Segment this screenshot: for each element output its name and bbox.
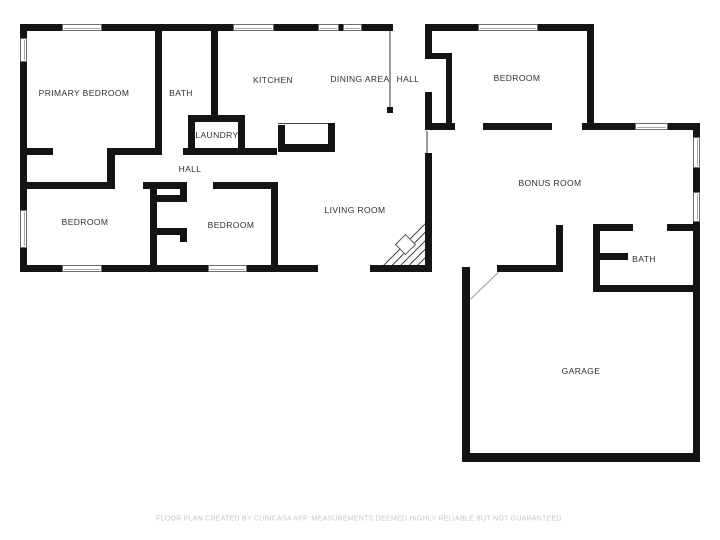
wall-bedroom-right-side xyxy=(587,24,594,130)
window-marker xyxy=(635,123,668,130)
wall-hall-top xyxy=(20,148,53,155)
wall-closet xyxy=(180,228,187,242)
wall-garage-left xyxy=(462,267,470,462)
wall-hall-top xyxy=(183,148,277,155)
wall-closet-shelf xyxy=(157,228,180,235)
room-label-hall-top: HALL xyxy=(397,74,420,84)
wall-bonus-top xyxy=(582,123,635,130)
room-label-bath-main: BATH xyxy=(169,88,193,98)
room-label-laundry: LAUNDRY xyxy=(195,130,238,140)
window-marker xyxy=(478,24,538,31)
wall-bath-stub xyxy=(600,253,628,260)
room-label-garage: GARAGE xyxy=(562,366,601,376)
footer-disclaimer: FLOOR PLAN CREATED BY CUBICASA APP. MEAS… xyxy=(156,516,564,523)
window-marker xyxy=(318,24,339,31)
room-label-bedroom-left: BEDROOM xyxy=(62,217,109,227)
wall-bath-top xyxy=(667,224,700,231)
window-marker xyxy=(20,210,27,248)
divider-line-dining-hall xyxy=(389,31,391,109)
wall-bedroom-mid-right xyxy=(271,182,278,272)
wall-kitchen-left xyxy=(211,31,218,117)
window-marker xyxy=(693,137,700,168)
room-label-dining-area: DINING AREA xyxy=(330,74,389,84)
wall-bedrooms-top xyxy=(213,182,278,189)
wall-laundry-left xyxy=(188,122,195,155)
window-marker xyxy=(62,265,102,272)
wall-bedrooms-top xyxy=(20,182,115,189)
wall-living-bonus-divider xyxy=(425,153,432,272)
room-label-bonus-room: BONUS ROOM xyxy=(518,178,581,188)
wall-bonus-top xyxy=(425,123,455,130)
wall-segment xyxy=(370,265,432,272)
room-label-kitchen: KITCHEN xyxy=(253,75,293,85)
wall-bonus-bottom xyxy=(497,265,563,272)
wall-closet-shelf xyxy=(157,195,180,202)
window-marker xyxy=(343,24,362,31)
wall-closet xyxy=(150,182,157,272)
wall-garage-bottom xyxy=(462,453,700,462)
room-label-primary-bedroom: PRIMARY BEDROOM xyxy=(39,88,130,98)
wall-closet xyxy=(180,182,187,202)
room-label-bath-right: BATH xyxy=(632,254,656,264)
wall-laundry-right xyxy=(238,115,245,155)
wall-closet xyxy=(446,53,452,125)
divider-line-hall-living xyxy=(426,131,428,155)
wall-segment xyxy=(20,24,27,38)
room-label-bedroom-right: BEDROOM xyxy=(494,73,541,83)
wall-bonus-top xyxy=(483,123,552,130)
room-label-living-room: LIVING ROOM xyxy=(324,205,385,215)
wall-primary-bedroom-right xyxy=(155,31,162,148)
window-marker xyxy=(20,38,27,62)
wall-right-exterior xyxy=(693,123,700,462)
room-label-bedroom-mid: BEDROOM xyxy=(208,220,255,230)
wall-laundry-top xyxy=(188,115,244,122)
wall-segment xyxy=(387,107,393,113)
window-marker xyxy=(693,192,700,222)
kitchen-island-base xyxy=(278,144,335,152)
room-label-hall-mid: HALL xyxy=(179,164,202,174)
wall-segment xyxy=(556,225,563,272)
garage-corner-line xyxy=(470,272,499,300)
wall-bath-left xyxy=(593,224,600,292)
wall-bath-bottom xyxy=(593,285,700,292)
window-marker xyxy=(233,24,274,31)
window-marker xyxy=(62,24,102,31)
wall-hall-top xyxy=(107,148,162,155)
floor-plan-canvas: PRIMARY BEDROOM BATH KITCHEN DINING AREA… xyxy=(0,0,720,540)
window-marker xyxy=(208,265,247,272)
